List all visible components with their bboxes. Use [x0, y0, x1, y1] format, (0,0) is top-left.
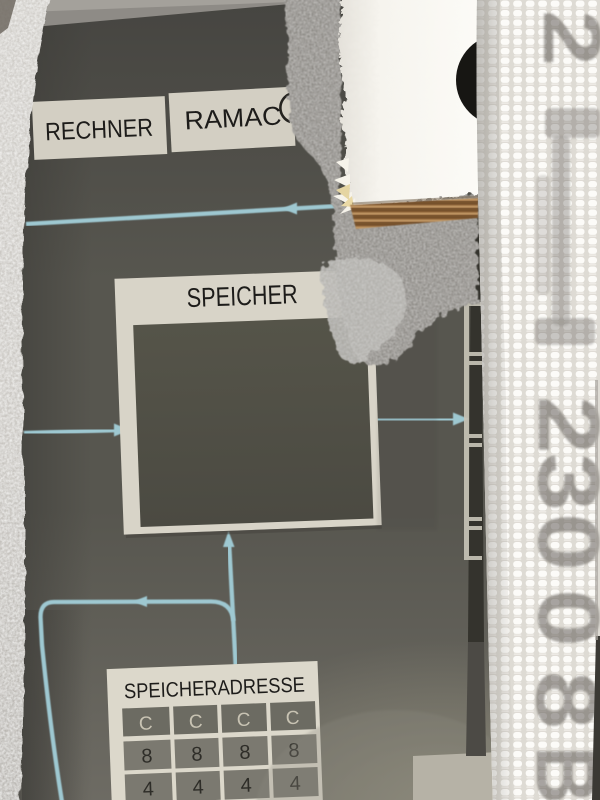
svg-text:8: 8 [239, 742, 251, 764]
svg-text:4: 4 [142, 778, 154, 800]
svg-text:SPEICHER: SPEICHER [186, 279, 298, 313]
svg-text:4: 4 [240, 775, 252, 797]
svg-text:C: C [236, 710, 251, 732]
svg-text:C: C [188, 711, 203, 733]
svg-text:4: 4 [192, 776, 204, 798]
svg-text:8: 8 [141, 745, 153, 767]
svg-text:C: C [285, 708, 300, 730]
svg-text:C: C [138, 713, 153, 735]
svg-text:RAMAC: RAMAC [184, 100, 282, 135]
svg-text:RECHNER: RECHNER [45, 114, 154, 147]
svg-text:8: 8 [191, 743, 203, 765]
